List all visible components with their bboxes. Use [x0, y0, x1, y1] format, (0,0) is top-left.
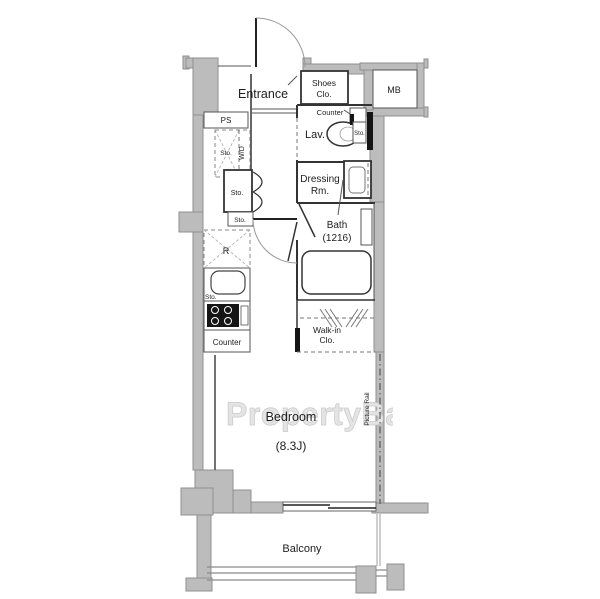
entrance-door-swing-arc [256, 18, 305, 67]
shoes-closet-label-1: Shoes [312, 78, 336, 88]
dressing-label-1: Dressing [300, 174, 339, 185]
pipe-space-label: PS [221, 116, 232, 125]
partition-link-lines [376, 570, 387, 576]
lavatory-label: Lav. [305, 129, 325, 141]
walkin-closet: Walk-in Clo. [295, 300, 376, 352]
meter-box-label: MB [387, 85, 401, 95]
walkin-label-1: Walk-in [313, 325, 341, 335]
storage-closet-label: Sto. [231, 190, 244, 197]
balcony-divider-line [377, 514, 380, 566]
dressing-label-2: Rm. [311, 186, 329, 197]
balcony-window-frame [283, 502, 376, 511]
bedroom-label: Bedroom [266, 410, 317, 424]
hall-storage-label: Sto. [234, 217, 246, 224]
floorplan-drawing: Entrance Shoes Clo. MB Counter Sto. Lav.… [0, 0, 600, 599]
bedroom: PropertyBank Bedroom (8.3J) Picture Rail [226, 354, 442, 511]
kitchen: R Sto. Counter [204, 230, 250, 470]
bifold-door-upper [253, 172, 262, 192]
wd-storage-label: Sto. [220, 150, 232, 157]
kitchen-sink [211, 271, 245, 294]
bath-leader-line [338, 180, 343, 215]
watermark-text: PropertyBank [226, 396, 442, 432]
bedroom-size-label: (8.3J) [276, 439, 307, 453]
meter-box: MB [373, 70, 417, 108]
balcony-label: Balcony [282, 543, 322, 555]
storage-column: PS Sto. W/D Sto. Sto. [204, 112, 262, 226]
kitchen-counter-label: Counter [213, 338, 242, 347]
kitchen-storage-label: Sto. [205, 294, 217, 301]
entrance-leader-line [288, 76, 297, 85]
bath-door-leaf [299, 204, 315, 237]
shoes-closet-label-2: Clo. [316, 89, 331, 99]
shoes-closet: Shoes Clo. [301, 71, 348, 104]
washer-dryer-label: W/D [239, 146, 246, 160]
entry-counter-label: Counter [317, 108, 344, 117]
bath-label-2: (1216) [323, 233, 352, 244]
balcony-railing [207, 567, 356, 580]
fridge-label: R [223, 246, 230, 256]
picture-rail-label: Picture Rail [364, 392, 371, 426]
hall-door-swing-arc [253, 219, 297, 263]
dressing-room: Dressing Rm. [297, 161, 375, 203]
floorplan-canvas: Entrance Shoes Clo. MB Counter Sto. Lav.… [0, 0, 600, 599]
bath-shelf [361, 209, 372, 245]
hall-door [253, 219, 297, 263]
hall-door-leaf [288, 222, 297, 261]
gas-stove [207, 304, 239, 327]
bathtub [302, 251, 371, 294]
bath-label-1: Bath [327, 220, 348, 231]
walkin-label-2: Clo. [319, 335, 334, 345]
bifold-door-lower [253, 192, 262, 212]
entrance-label: Entrance [238, 87, 288, 101]
entrance-step-lines [252, 109, 297, 113]
lav-storage-label: Sto. [354, 131, 365, 137]
